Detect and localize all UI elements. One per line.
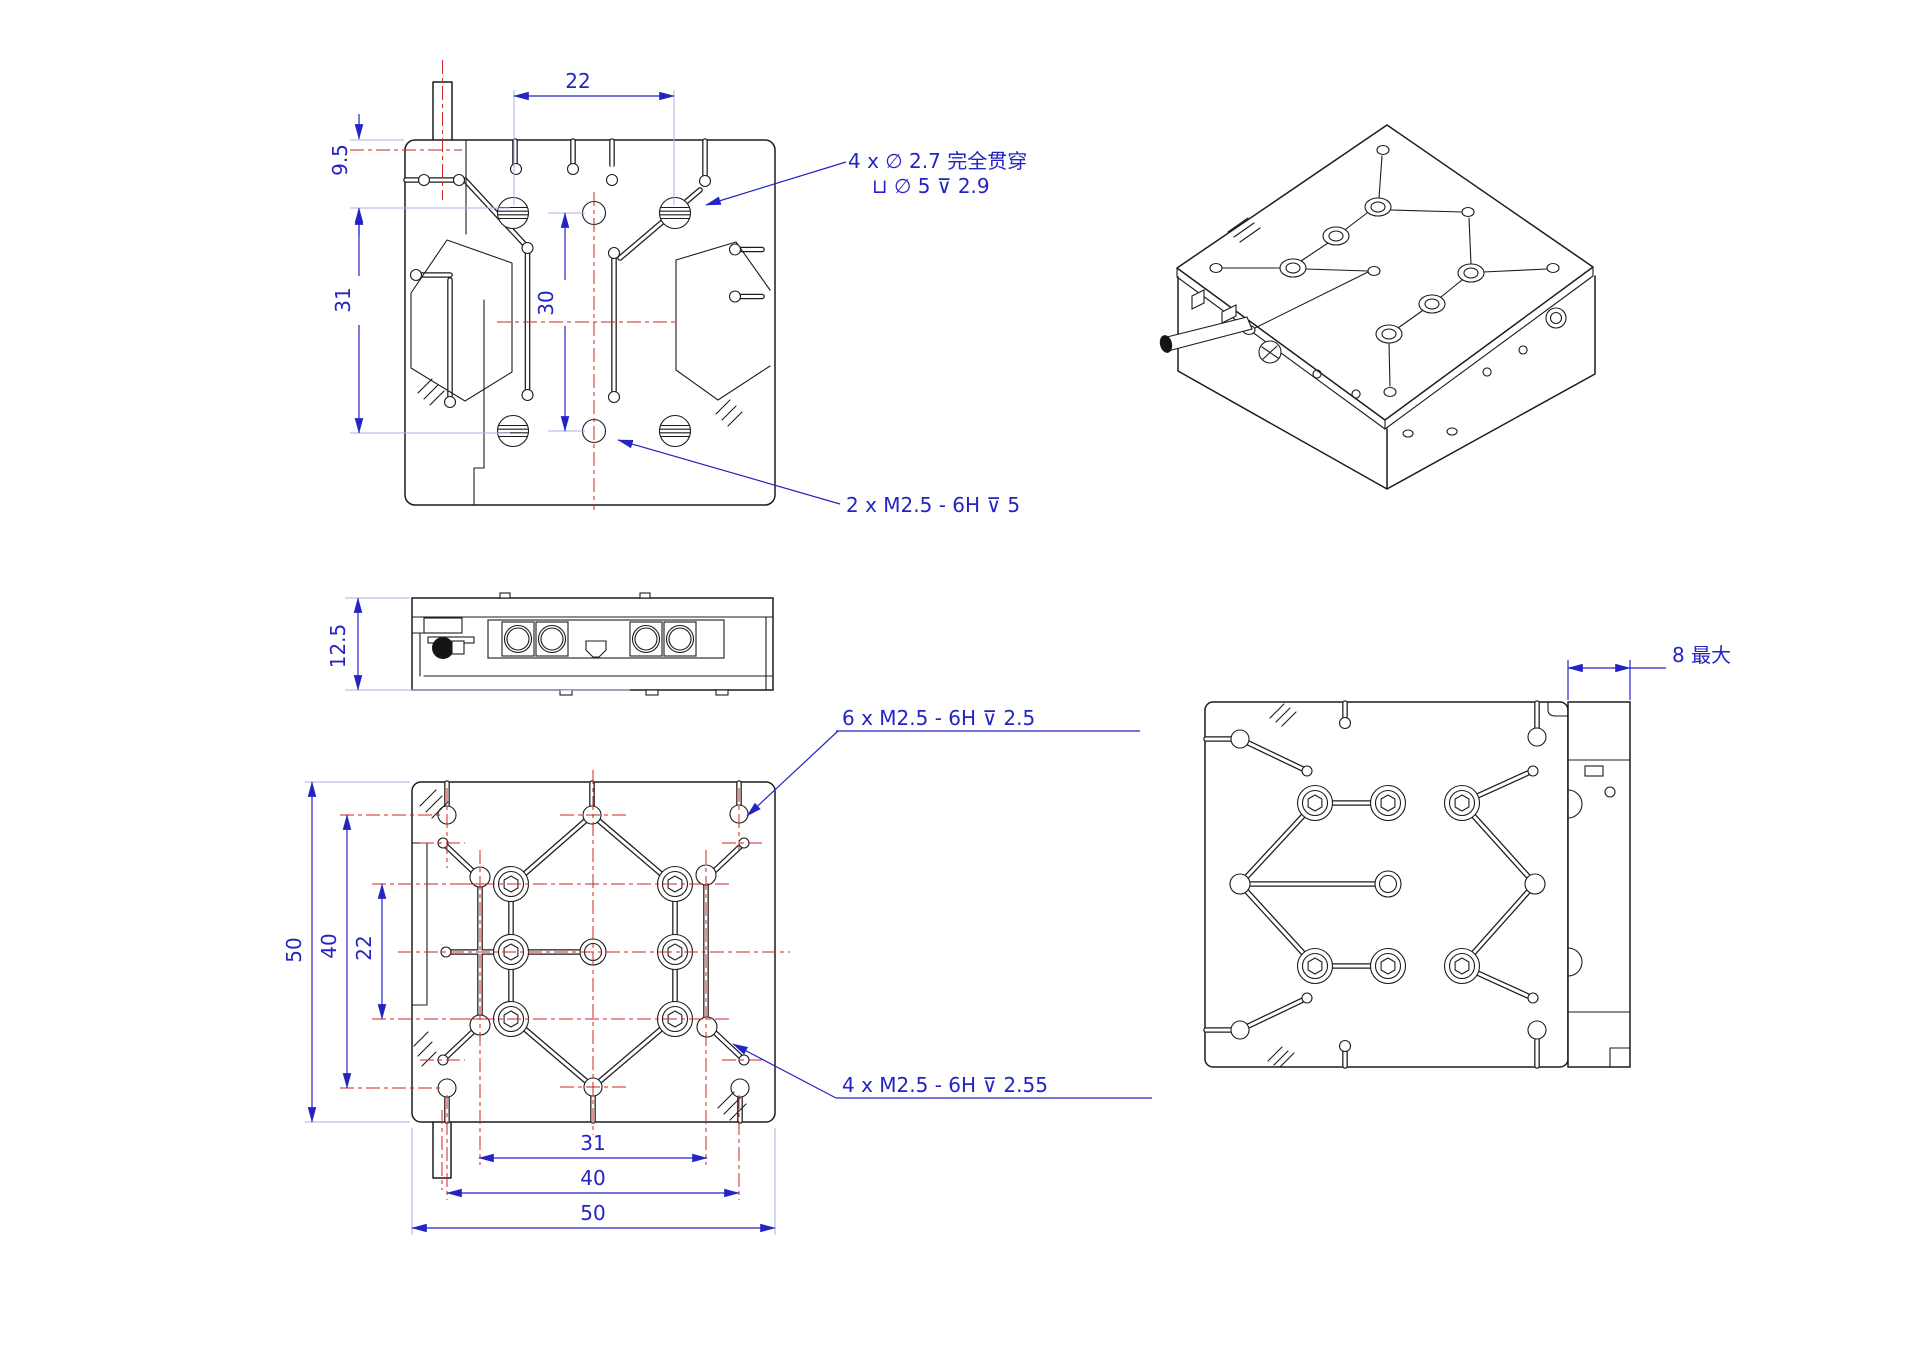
note-counterbore-line1: 4 x ∅ 2.7 完全贯穿: [848, 149, 1027, 173]
dim-left-inner: 22: [352, 935, 376, 960]
dimensions-side-view: 12.5: [326, 598, 358, 690]
dim-max-protrusion: 8 最大: [1672, 643, 1731, 667]
dim-bottom-mid: 40: [580, 1166, 605, 1190]
dim-bottom-outer: 50: [580, 1201, 605, 1225]
dim-side-height: 12.5: [326, 624, 350, 669]
right-view: 8 最大: [1205, 643, 1731, 1067]
bottom-view: 50 40 22 31 40 50 6 x M2.5 - 6H ⊽ 2.5 4 …: [282, 706, 1152, 1235]
note-tapped-center: 2 x M2.5 - 6H ⊽ 5: [846, 493, 1020, 517]
note-tapped-four: 4 x M2.5 - 6H ⊽ 2.55: [842, 1073, 1048, 1097]
dimensions-right-view: 8 最大: [1568, 643, 1731, 700]
top-view: 22 9.5 31 30 4 x ∅ 2.7 完全贯穿 ⊔ ∅ 5 ⊽ 2.9 …: [328, 60, 1027, 633]
dim-left-height: 31: [331, 287, 355, 312]
dim-top-width: 22: [565, 69, 590, 93]
dim-center-height: 30: [534, 290, 558, 315]
dim-left-mid: 40: [317, 933, 341, 958]
dim-left-outer: 50: [282, 937, 306, 962]
note-tapped-six: 6 x M2.5 - 6H ⊽ 2.5: [842, 706, 1035, 730]
drawing-sheet: 22 9.5 31 30 4 x ∅ 2.7 完全贯穿 ⊔ ∅ 5 ⊽ 2.9 …: [0, 0, 1920, 1357]
side-view: 12.5: [326, 593, 773, 695]
note-counterbore-line2: ⊔ ∅ 5 ⊽ 2.9: [872, 174, 990, 198]
dim-bottom-inner: 31: [580, 1131, 605, 1155]
iso-view: [1159, 125, 1595, 489]
dim-top-offset: 9.5: [328, 144, 352, 176]
